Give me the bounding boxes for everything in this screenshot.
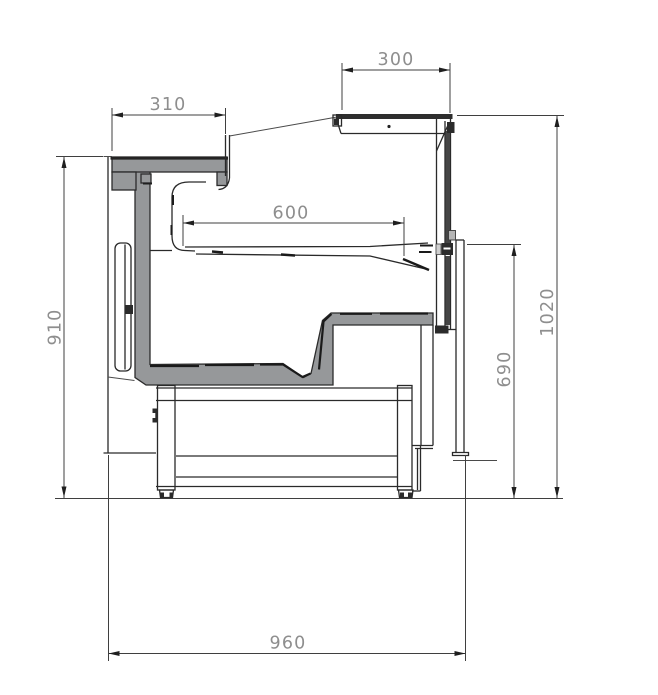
front-panel-hardware xyxy=(449,231,456,241)
cross-section-drawing: 310 300 600 910 1020 xyxy=(0,0,658,695)
glass-mid-joint xyxy=(436,243,453,255)
canopy-dot xyxy=(387,125,390,128)
glass-top-corner-joint xyxy=(447,122,455,133)
dim-label-countertop-depth: 310 xyxy=(149,95,186,115)
dim-label-canopy-depth: 300 xyxy=(377,50,414,70)
dim-label-overall-height: 1020 xyxy=(538,287,558,336)
bumper-joint xyxy=(125,305,134,314)
dim-label-overall-depth: 960 xyxy=(269,634,306,654)
dim-label-front-height: 690 xyxy=(495,350,515,387)
worktop-left-endcap xyxy=(112,172,136,190)
technical-drawing-canvas: 310 300 600 910 1020 xyxy=(0,0,658,695)
dim-label-countertop-height: 910 xyxy=(46,308,66,345)
dim-label-deck-depth: 600 xyxy=(272,204,309,224)
worktop-bracket xyxy=(141,174,152,184)
leg-clamp xyxy=(153,409,159,423)
